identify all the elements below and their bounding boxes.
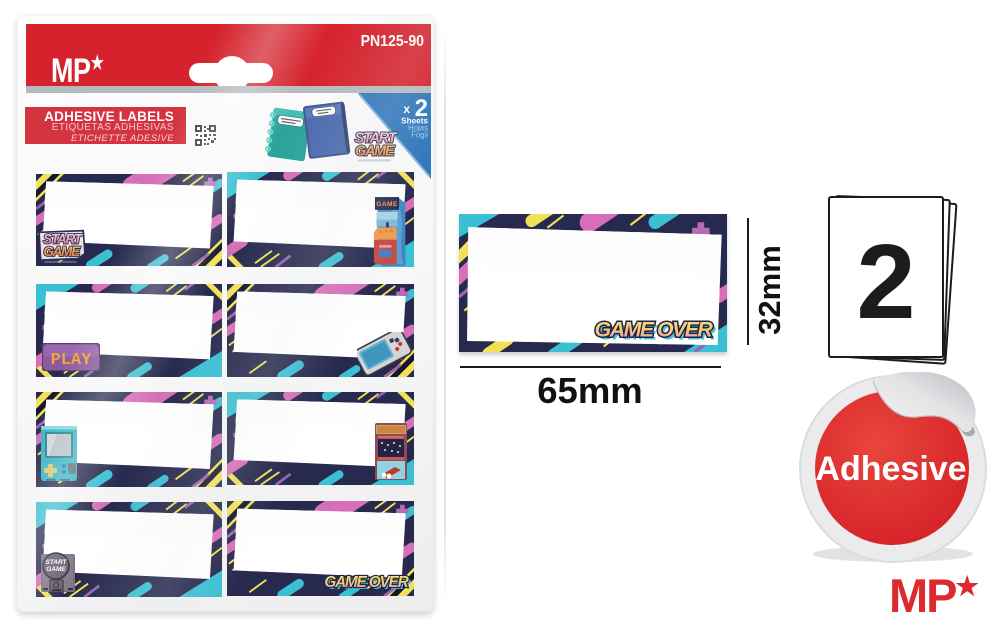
svg-text:Adhesive: Adhesive — [815, 450, 966, 488]
svg-text:2: 2 — [857, 223, 916, 341]
svg-text:GAME: GAME — [355, 144, 395, 160]
svg-text:x: x — [403, 102, 410, 116]
svg-text:Fogli: Fogli — [411, 131, 428, 140]
